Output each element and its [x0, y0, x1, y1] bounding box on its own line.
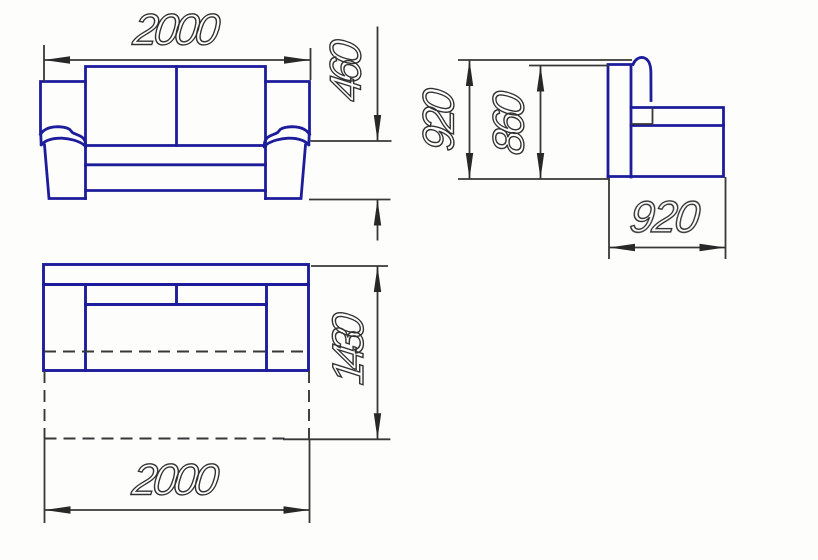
svg-text:2000: 2000: [129, 456, 222, 505]
svg-text:1430: 1430: [324, 310, 373, 387]
svg-text:460: 460: [322, 37, 371, 104]
svg-text:860: 860: [485, 88, 534, 157]
svg-text:920: 920: [627, 193, 703, 242]
svg-text:2000: 2000: [130, 6, 223, 55]
svg-text:920: 920: [415, 86, 464, 154]
